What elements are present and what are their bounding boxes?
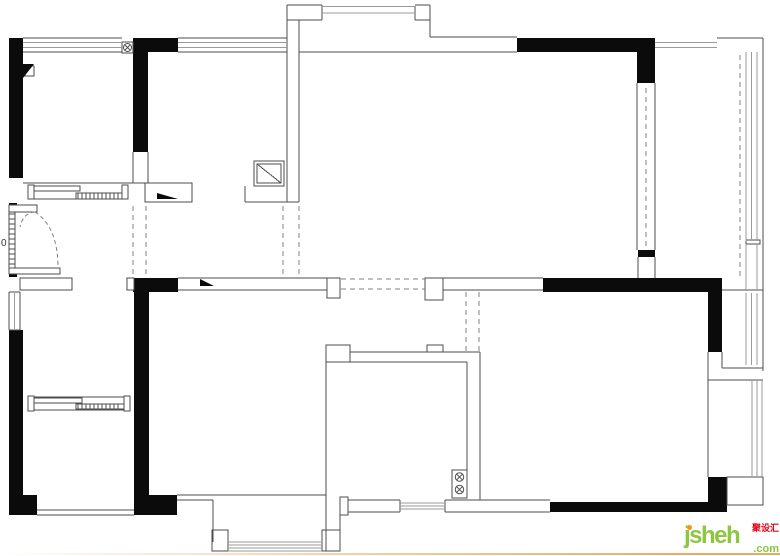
wall-solid: [708, 278, 722, 352]
wall-solid: [638, 250, 655, 257]
floor-plan-page: 0 jsheh 聚设汇 .com: [0, 0, 780, 556]
bottom-accent-line: [0, 553, 780, 555]
wall-outline: [427, 345, 443, 352]
wall-solid: [550, 502, 727, 512]
wall-outline: [727, 477, 763, 505]
wall-solid: [543, 278, 722, 292]
floor-plan: 0: [0, 0, 780, 556]
logo-cn-text: 聚设汇: [752, 521, 779, 534]
wall-outline: [9, 205, 37, 212]
plan-label: 0: [1, 238, 7, 249]
wall-solid: [134, 495, 177, 515]
wall-outline: [326, 345, 350, 362]
wall-solid: [9, 330, 23, 515]
wall-solid: [517, 38, 655, 52]
wall-outline: [76, 404, 124, 409]
wall-solid: [708, 477, 727, 512]
wall-outline: [746, 240, 760, 244]
logo-brand-text: jsheh: [684, 522, 739, 550]
wall-outline: [145, 183, 192, 202]
wall-solid: [134, 278, 149, 515]
wall-outline: [34, 398, 82, 403]
wall-solid: [133, 38, 178, 52]
wall-outline: [28, 185, 34, 199]
door-swing-arc: [20, 212, 35, 227]
wall-outline: [76, 193, 122, 199]
logo-tld-text: .com: [753, 543, 779, 555]
watermark-logo: jsheh 聚设汇 .com: [684, 521, 780, 555]
door-swing-arc: [35, 212, 58, 265]
wall-solid: [133, 38, 148, 152]
wall-outline: [327, 278, 340, 298]
logo-j-dot-icon: [687, 525, 692, 530]
wall-outline: [212, 530, 228, 551]
wall-solid: [9, 495, 37, 515]
wall-solid: [637, 52, 655, 83]
wall-outline: [34, 186, 80, 191]
wall-outline: [340, 497, 348, 515]
wall-outline: [322, 530, 340, 551]
wall-outline: [127, 278, 134, 290]
wall-outline: [9, 268, 60, 274]
wall-outline: [124, 396, 130, 411]
wall-outline: [20, 278, 72, 290]
wall-solid: [9, 38, 23, 178]
wall-outline: [425, 278, 443, 300]
wall-outline: [122, 185, 128, 199]
direction-triangle: [200, 279, 214, 286]
wall-outline: [28, 396, 34, 411]
